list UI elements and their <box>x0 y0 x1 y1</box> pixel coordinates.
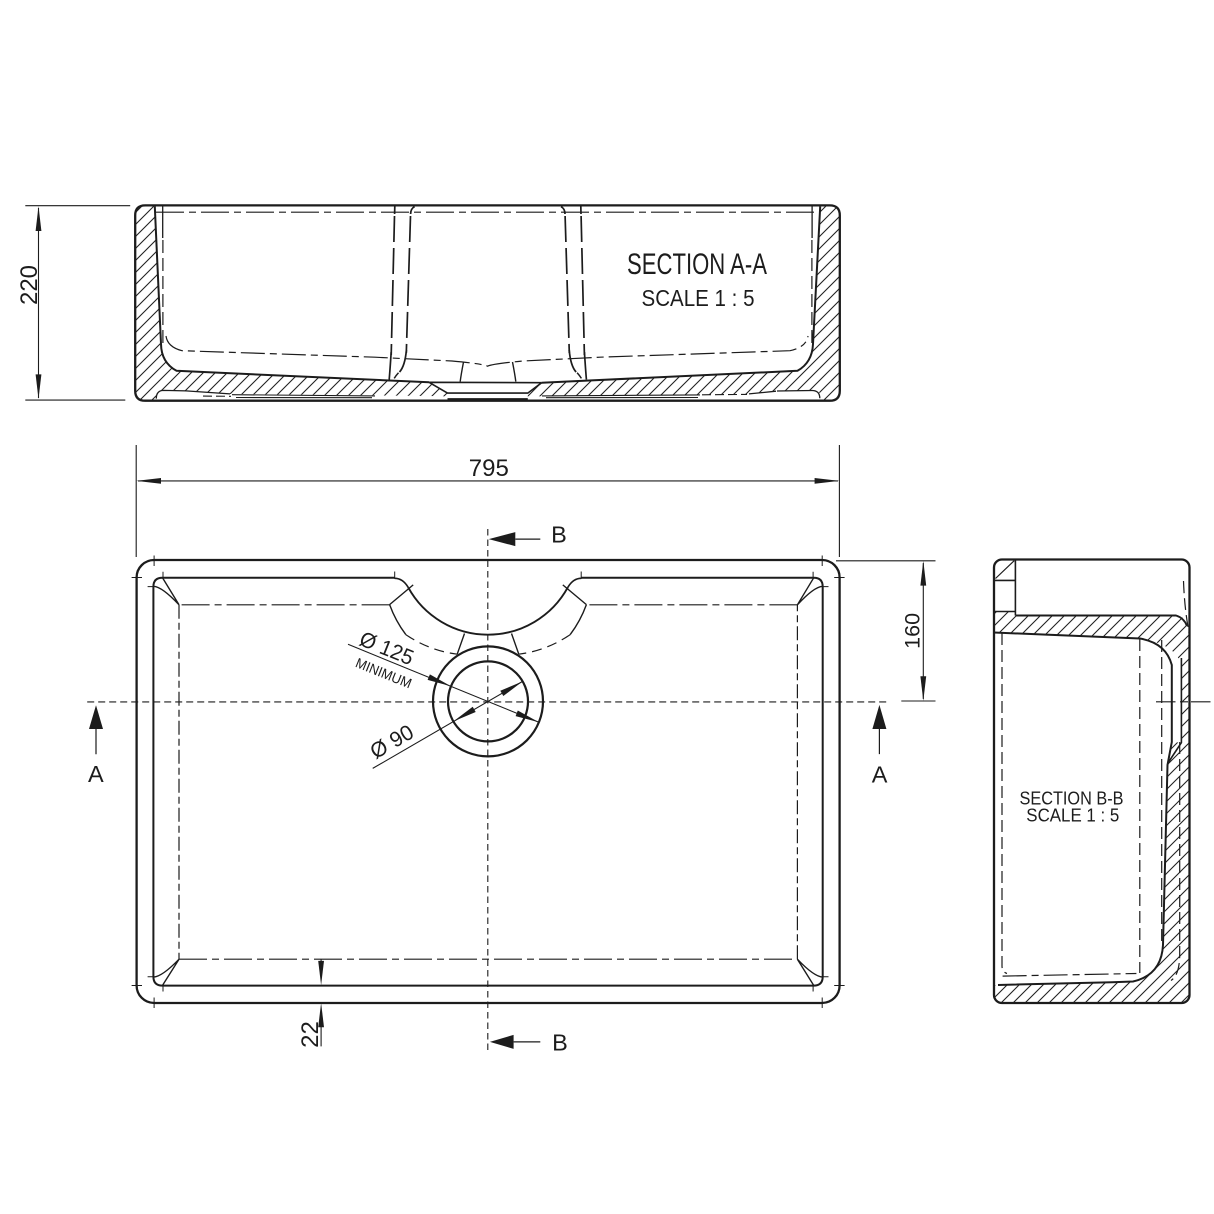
svg-text:795: 795 <box>469 455 509 482</box>
svg-text:220: 220 <box>16 265 43 305</box>
svg-text:SCALE 1 : 5: SCALE 1 : 5 <box>642 285 755 311</box>
svg-text:160: 160 <box>901 613 925 649</box>
svg-text:SECTION A-A: SECTION A-A <box>627 248 767 281</box>
svg-text:A: A <box>88 761 104 787</box>
svg-text:B: B <box>552 1030 568 1056</box>
svg-text:B: B <box>551 522 567 548</box>
svg-text:SCALE 1 : 5: SCALE 1 : 5 <box>1026 804 1119 825</box>
svg-text:22: 22 <box>297 1021 324 1048</box>
svg-text:A: A <box>872 762 888 788</box>
